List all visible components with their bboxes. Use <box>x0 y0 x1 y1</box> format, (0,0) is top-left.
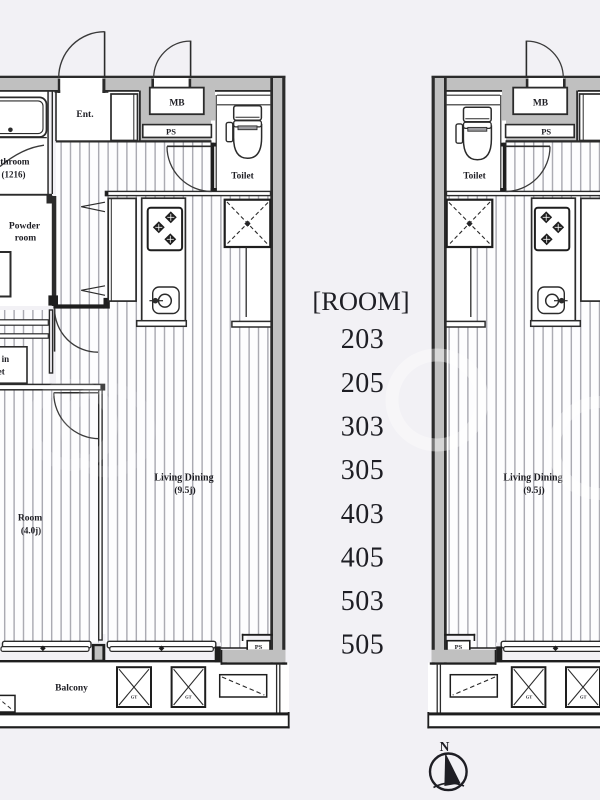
svg-text:Room: Room <box>18 514 42 524</box>
svg-text:(9.5j): (9.5j) <box>174 485 195 496</box>
svg-text:403: 403 <box>341 499 385 530</box>
svg-text:503: 503 <box>341 586 385 617</box>
svg-text:room: room <box>15 234 37 244</box>
svg-text:Living Dining: Living Dining <box>503 473 562 484</box>
svg-text:305: 305 <box>341 455 385 486</box>
svg-text:MB: MB <box>169 99 185 109</box>
svg-text:Ent.: Ent. <box>76 110 93 120</box>
svg-text:W: W <box>245 223 250 228</box>
svg-text:GT: GT <box>526 695 533 700</box>
svg-text:N: N <box>440 739 450 754</box>
svg-text:GT: GT <box>580 695 587 700</box>
svg-text:(4.0j): (4.0j) <box>21 526 41 536</box>
svg-text:[ROOM]: [ROOM] <box>312 286 409 316</box>
svg-text:PS: PS <box>541 126 551 136</box>
svg-text:505: 505 <box>341 630 385 661</box>
svg-text:303: 303 <box>341 412 385 443</box>
svg-text:Balcony: Balcony <box>55 684 88 694</box>
svg-text:PS: PS <box>166 126 176 136</box>
svg-text:Walk in: Walk in <box>0 354 9 364</box>
svg-text:W: W <box>467 223 472 228</box>
svg-text:GT: GT <box>185 695 192 700</box>
svg-text:closet: closet <box>0 367 5 377</box>
svg-text:405: 405 <box>341 542 385 573</box>
svg-text:Powder: Powder <box>9 222 41 232</box>
svg-text:Living Dining: Living Dining <box>154 473 213 484</box>
svg-text:GT: GT <box>131 695 138 700</box>
svg-text:Bathroom: Bathroom <box>0 158 30 168</box>
svg-text:Toilet: Toilet <box>463 171 486 181</box>
svg-text:(1216): (1216) <box>2 170 26 180</box>
svg-text:203: 203 <box>341 324 385 355</box>
svg-text:PS: PS <box>255 644 263 651</box>
svg-text:Toilet: Toilet <box>231 171 254 181</box>
svg-text:205: 205 <box>341 368 385 399</box>
svg-text:MB: MB <box>533 99 549 109</box>
svg-text:(9.5j): (9.5j) <box>523 485 544 496</box>
svg-text:PS: PS <box>455 644 463 651</box>
